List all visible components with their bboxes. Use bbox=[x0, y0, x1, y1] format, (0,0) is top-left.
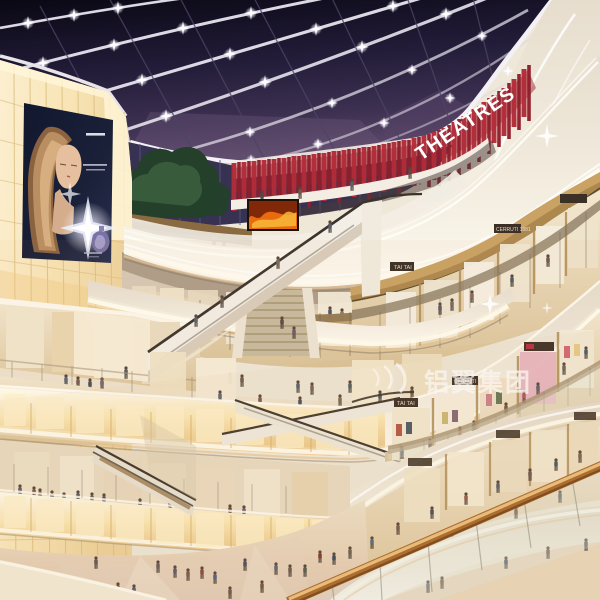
svg-text:CERRUTI 1881: CERRUTI 1881 bbox=[496, 227, 531, 233]
